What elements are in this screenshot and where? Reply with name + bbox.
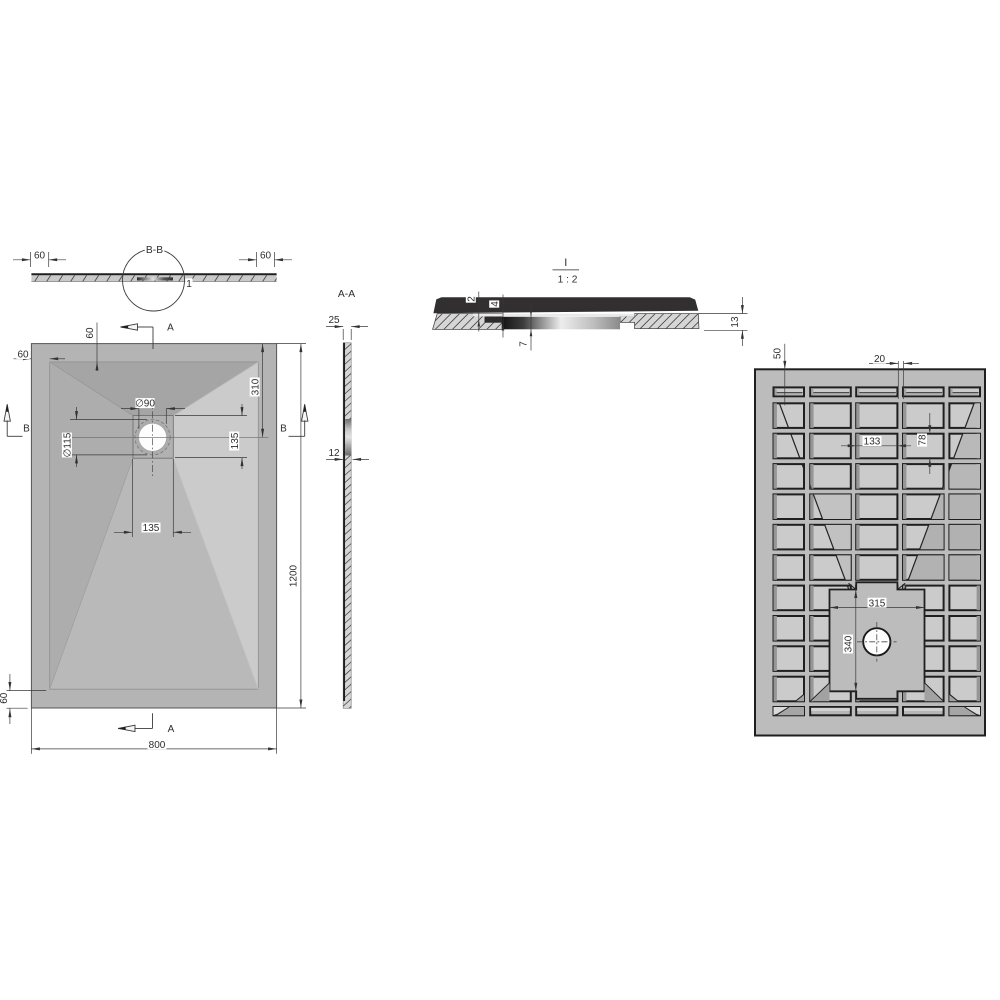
svg-text:340: 340	[844, 635, 855, 652]
svg-text:60: 60	[85, 327, 96, 339]
svg-text:4: 4	[490, 301, 501, 307]
svg-text:800: 800	[149, 740, 166, 751]
svg-text:A: A	[167, 323, 174, 334]
svg-text:310: 310	[250, 378, 261, 395]
svg-text:25: 25	[328, 315, 340, 326]
svg-text:78: 78	[918, 434, 929, 446]
svg-text:13: 13	[730, 316, 741, 328]
svg-text:7: 7	[519, 341, 530, 347]
svg-text:135: 135	[143, 523, 160, 534]
svg-text:50: 50	[773, 348, 784, 360]
svg-text:1 : 2: 1 : 2	[558, 274, 578, 285]
svg-text:60: 60	[34, 251, 46, 262]
svg-text:∅90: ∅90	[135, 399, 155, 410]
svg-text:1200: 1200	[289, 564, 300, 587]
svg-text:60: 60	[17, 350, 29, 361]
svg-text:A: A	[168, 724, 175, 735]
svg-text:12: 12	[328, 448, 340, 459]
svg-text:2: 2	[466, 296, 477, 302]
svg-text:60: 60	[0, 692, 10, 704]
svg-text:A-A: A-A	[338, 289, 355, 300]
svg-text:B: B	[23, 424, 30, 435]
svg-text:133: 133	[864, 437, 881, 448]
svg-text:1: 1	[186, 279, 192, 290]
svg-text:I: I	[564, 257, 567, 269]
svg-text:315: 315	[869, 598, 886, 609]
svg-text:B-B: B-B	[146, 245, 163, 256]
svg-text:60: 60	[260, 251, 272, 262]
svg-text:B: B	[280, 424, 287, 435]
svg-text:20: 20	[874, 354, 886, 365]
svg-text:∅115: ∅115	[63, 432, 74, 457]
svg-text:135: 135	[230, 432, 241, 449]
